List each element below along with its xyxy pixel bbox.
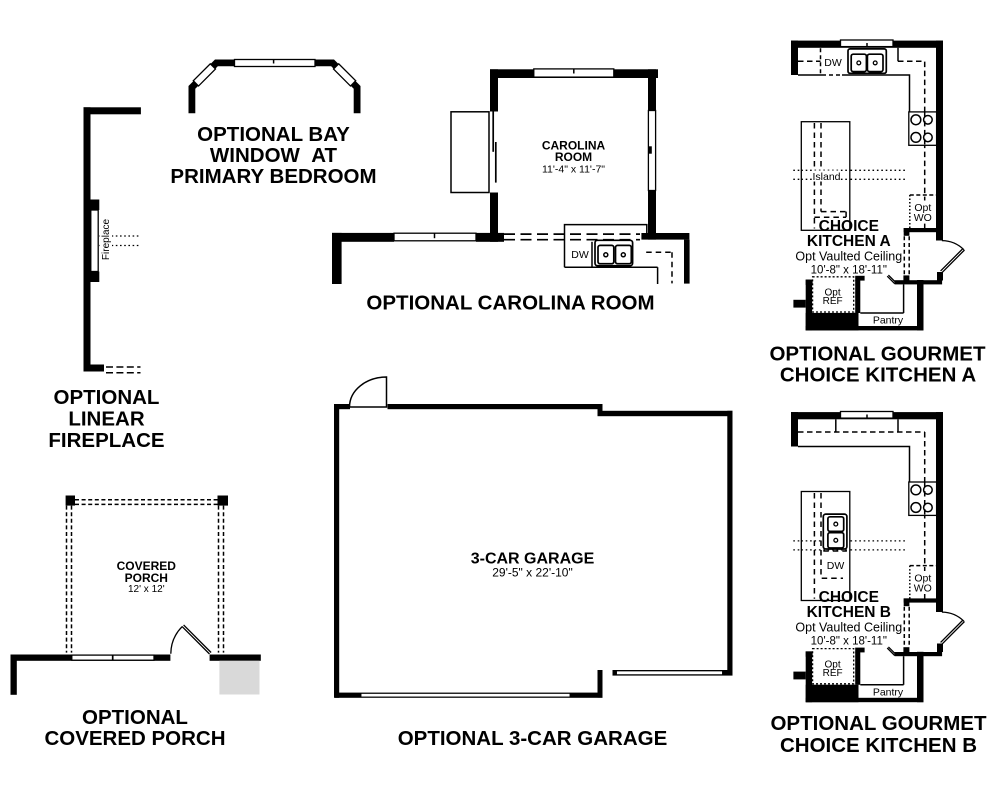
- svg-text:REF: REF: [823, 668, 843, 679]
- svg-text:OPTIONAL CAROLINA ROOM: OPTIONAL CAROLINA ROOM: [366, 292, 654, 315]
- svg-text:OPTIONAL GOURMET: OPTIONAL GOURMET: [769, 342, 985, 365]
- svg-text:KITCHEN B: KITCHEN B: [807, 604, 891, 621]
- svg-text:WINDOW AT: WINDOW AT: [210, 144, 338, 167]
- svg-text:DW: DW: [571, 249, 589, 261]
- svg-text:Opt Vaulted Ceiling: Opt Vaulted Ceiling: [795, 249, 902, 263]
- svg-text:OPTIONAL: OPTIONAL: [54, 386, 160, 409]
- svg-text:OPTIONAL GOURMET: OPTIONAL GOURMET: [770, 712, 986, 735]
- svg-text:Pantry: Pantry: [873, 687, 904, 699]
- svg-text:KITCHEN A: KITCHEN A: [807, 233, 891, 250]
- svg-text:PRIMARY BEDROOM: PRIMARY BEDROOM: [170, 165, 376, 188]
- svg-text:Fireplace: Fireplace: [101, 219, 112, 261]
- svg-text:WO: WO: [914, 583, 932, 595]
- svg-text:PORCH: PORCH: [125, 571, 168, 585]
- svg-text:Opt Vaulted Ceiling: Opt Vaulted Ceiling: [795, 620, 902, 634]
- svg-text:ROOM: ROOM: [555, 150, 592, 164]
- svg-text:REF: REF: [823, 296, 843, 307]
- svg-text:Island: Island: [812, 171, 840, 183]
- svg-text:10'-8" x 18'-11": 10'-8" x 18'-11": [811, 264, 887, 276]
- svg-text:COVERED PORCH: COVERED PORCH: [44, 727, 225, 750]
- svg-text:Pantry: Pantry: [873, 315, 904, 327]
- svg-text:WO: WO: [914, 212, 932, 224]
- svg-text:CHOICE KITCHEN B: CHOICE KITCHEN B: [780, 734, 977, 757]
- svg-text:11'-4" x 11'-7": 11'-4" x 11'-7": [542, 163, 605, 175]
- svg-text:CHOICE KITCHEN A: CHOICE KITCHEN A: [780, 363, 976, 386]
- svg-text:OPTIONAL 3-CAR GARAGE: OPTIONAL 3-CAR GARAGE: [398, 727, 668, 750]
- svg-text:DW: DW: [827, 560, 845, 572]
- svg-text:FIREPLACE: FIREPLACE: [48, 429, 164, 452]
- svg-text:12' x 12': 12' x 12': [128, 584, 165, 595]
- svg-text:OPTIONAL: OPTIONAL: [82, 706, 188, 729]
- svg-text:10'-8" x 18'-11": 10'-8" x 18'-11": [811, 635, 887, 647]
- svg-text:LINEAR: LINEAR: [68, 408, 145, 431]
- svg-text:OPTIONAL BAY: OPTIONAL BAY: [197, 123, 350, 146]
- svg-text:29'-5" x 22'-10": 29'-5" x 22'-10": [492, 566, 572, 580]
- svg-text:DW: DW: [824, 57, 842, 69]
